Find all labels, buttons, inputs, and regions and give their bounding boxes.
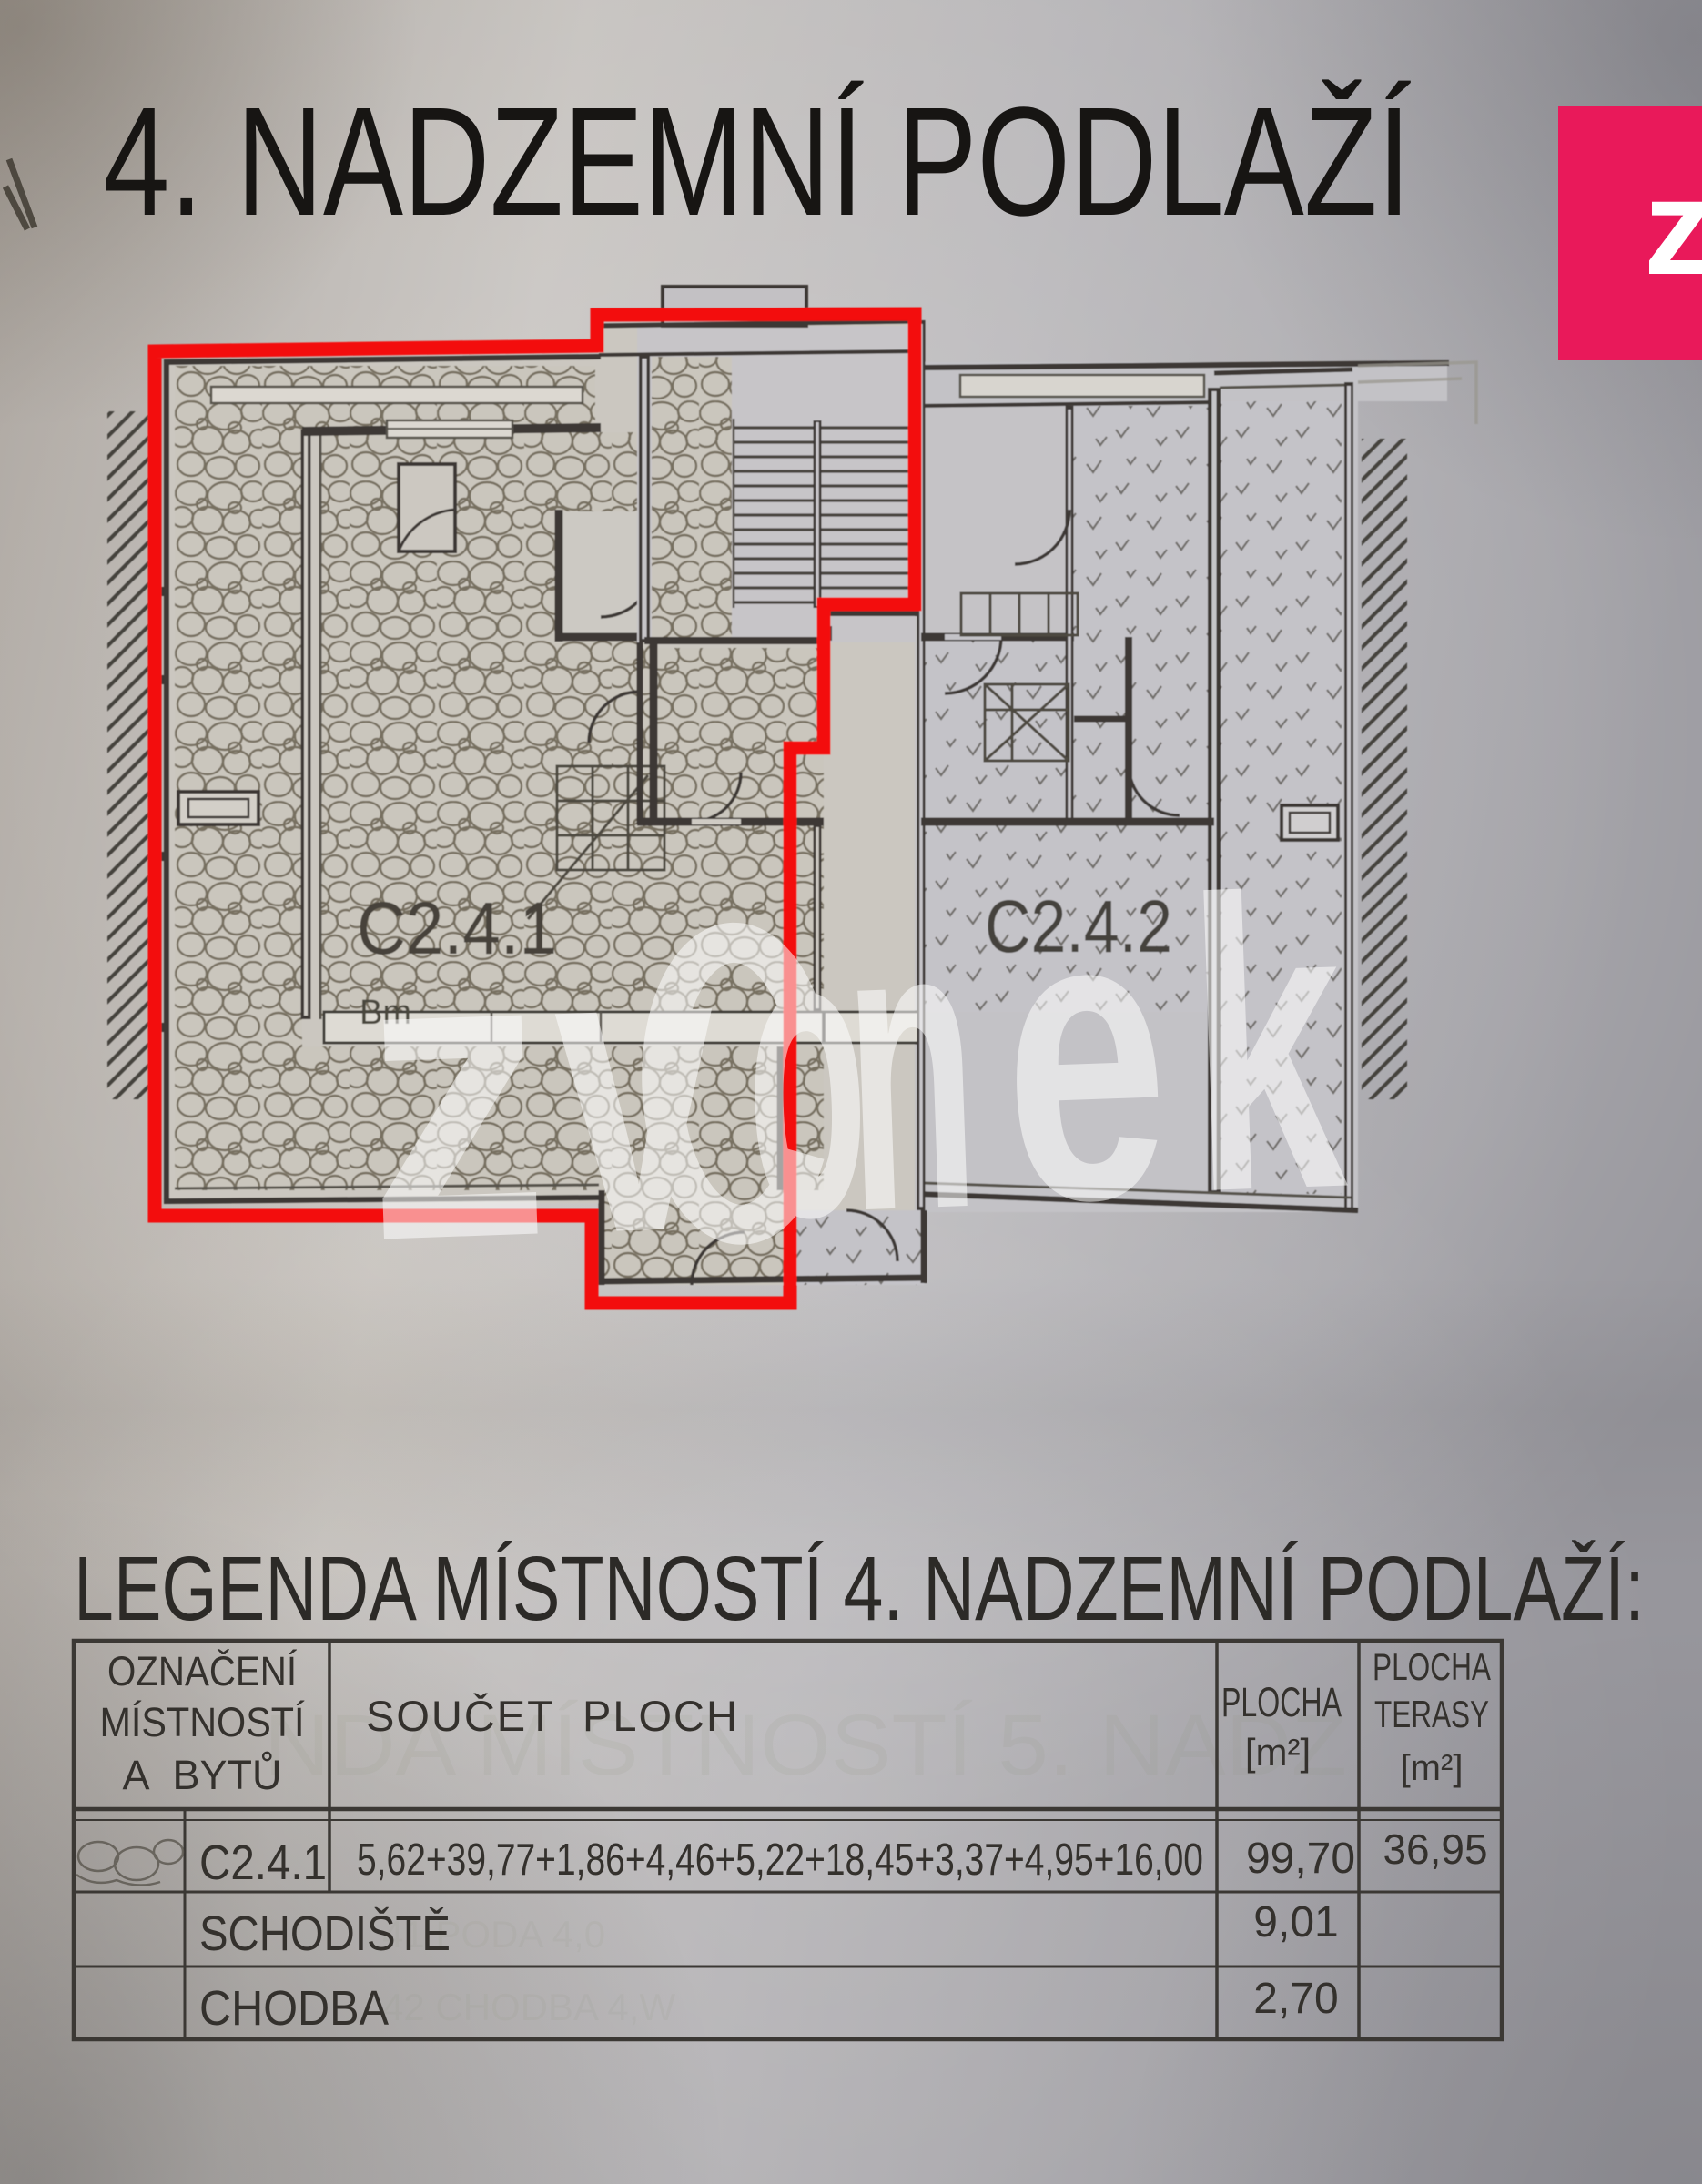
svg-text:[m²]: [m²] (1245, 1731, 1311, 1774)
svg-text:[m²]: [m²] (1401, 1748, 1464, 1788)
svg-text:2,70: 2,70 (1253, 1975, 1338, 2023)
svg-text:SOUČET PLOCH: SOUČET PLOCH (366, 1692, 739, 1740)
svg-text:9,01: 9,01 (1253, 1898, 1338, 1946)
svg-text:CHODBA: CHODBA (199, 1981, 389, 2036)
svg-text:e: e (997, 821, 1175, 1289)
svg-text:TERASY: TERASY (1374, 1693, 1489, 1735)
svg-text:LEGENDA MÍSTNOSTÍ 4. NADZEMNÍ: LEGENDA MÍSTNOSTÍ 4. NADZEMNÍ PODLAŽÍ: (74, 1538, 1645, 1640)
svg-text:z: z (357, 859, 554, 1328)
svg-text:5,62+39,77+1,86+4,46+5,22+18,4: 5,62+39,77+1,86+4,46+5,22+18,45+3,37+4,9… (357, 1835, 1203, 1885)
svg-text:k: k (1181, 812, 1352, 1279)
svg-text:42 CHODBA 4,W: 42 CHODBA 4,W (382, 1986, 675, 2028)
svg-text:v: v (549, 854, 726, 1321)
svg-text:SCHODIŠTĚ: SCHODIŠTĚ (199, 1906, 451, 1961)
svg-text:PLOCHA: PLOCHA (1221, 1679, 1342, 1725)
svg-text:36,95: 36,95 (1383, 1825, 1487, 1873)
svg-text:PLOCHA: PLOCHA (1373, 1645, 1491, 1688)
svg-text:A BYTŮ: A BYTŮ (122, 1752, 281, 1798)
svg-text:99,70: 99,70 (1246, 1835, 1355, 1883)
svg-text:C2.4.1: C2.4.1 (199, 1835, 327, 1890)
svg-text:MÍSTNOSTÍ: MÍSTNOSTÍ (100, 1699, 305, 1745)
svg-text:n: n (838, 832, 984, 1299)
svg-text:4. NADZEMNÍ PODLAŽÍ: 4. NADZEMNÍ PODLAŽÍ (103, 76, 1411, 248)
svg-text:z: z (1644, 150, 1702, 303)
svg-text:OZNAČENÍ: OZNAČENÍ (107, 1648, 297, 1694)
